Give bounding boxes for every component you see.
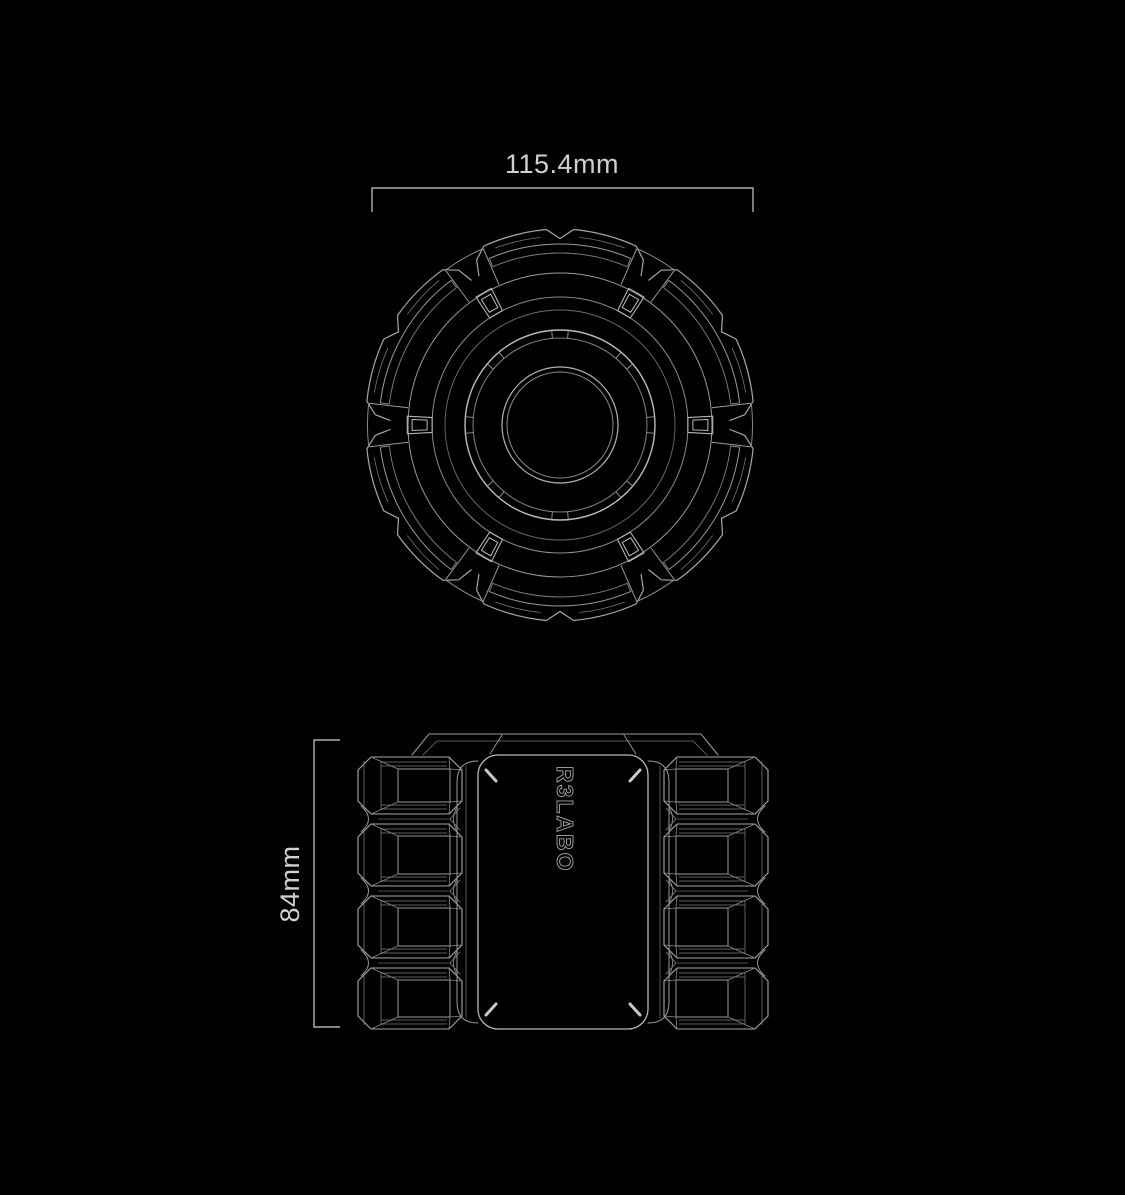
corner-tick (630, 1004, 640, 1015)
top-view-drawing (367, 230, 753, 621)
right-knob-column (664, 757, 768, 1029)
brand-engraving-text: R3LABO (552, 766, 578, 873)
connector-spokes (367, 249, 752, 602)
outer-lobes (367, 230, 753, 621)
technical-drawing-svg: 115.4mm R3LABO 84mm (0, 0, 1125, 1190)
ring-circle (408, 273, 712, 577)
inner-ring-ticks (465, 330, 654, 519)
width-dimension: 115.4mm (372, 149, 753, 212)
ring-circle (502, 367, 618, 483)
ring-circle (445, 310, 675, 540)
height-dimension-label: 84mm (275, 845, 305, 922)
ring-circle (432, 297, 688, 553)
corner-tick (486, 770, 496, 781)
height-dimension: 84mm (275, 740, 340, 1027)
corner-tick (630, 770, 640, 781)
ring-circle (507, 372, 613, 478)
width-dimension-line (372, 188, 753, 212)
top-edge-strip (412, 734, 718, 755)
ring-circle (465, 330, 655, 520)
concentric-rings (408, 273, 712, 577)
left-knob-column (358, 757, 462, 1029)
height-dimension-line (314, 740, 340, 1027)
blueprint-page: 115.4mm R3LABO 84mm (0, 0, 1125, 1195)
corner-tick (486, 1004, 496, 1015)
width-dimension-label: 115.4mm (505, 149, 619, 179)
ring-circle (473, 338, 647, 512)
